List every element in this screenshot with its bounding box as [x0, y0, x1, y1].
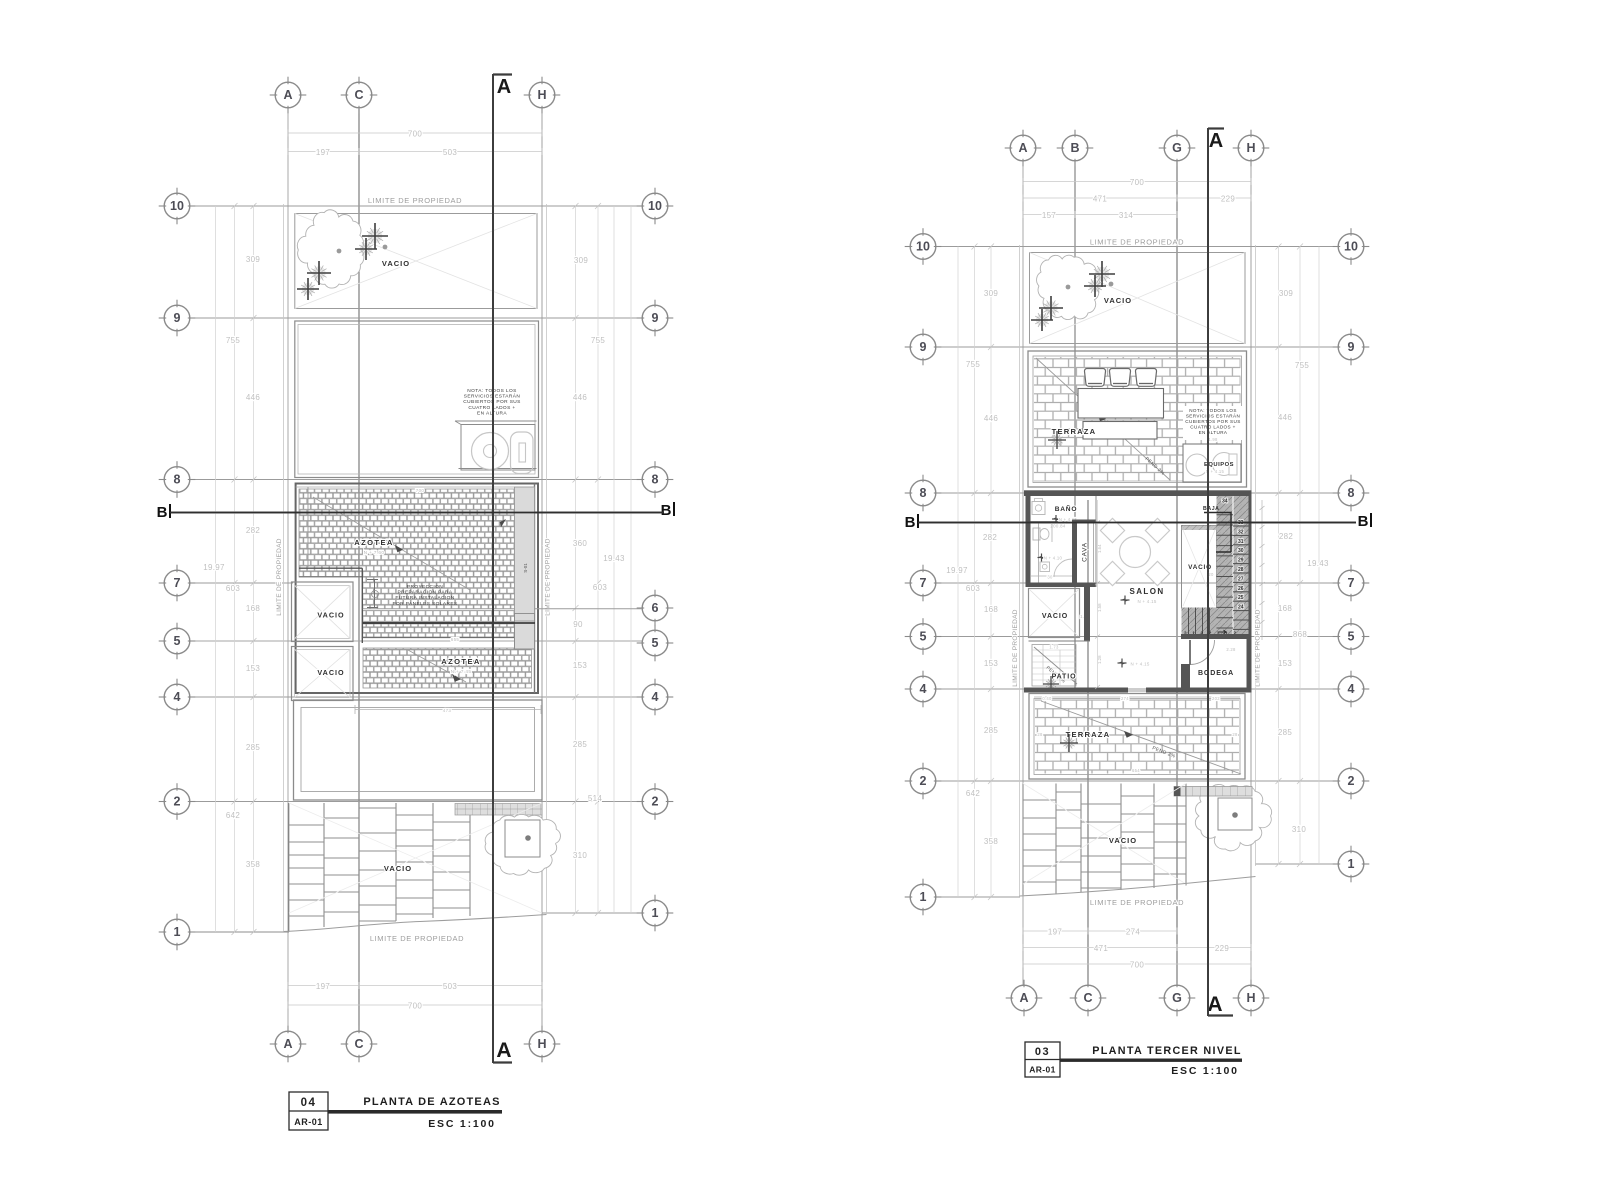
svg-text:VACIO: VACIO [382, 259, 410, 268]
svg-text:NOTA: TODOS LOS: NOTA: TODOS LOS [467, 388, 516, 394]
svg-text:9: 9 [1348, 340, 1355, 354]
svg-text:90: 90 [573, 620, 583, 629]
svg-text:30: 30 [1238, 548, 1244, 554]
svg-text:N + 4.15: N + 4.15 [1137, 599, 1156, 604]
svg-text:274: 274 [1121, 696, 1129, 701]
svg-text:2: 2 [1348, 774, 1355, 788]
svg-text:10: 10 [170, 199, 184, 213]
svg-text:CUBIERTOS POR SUS: CUBIERTOS POR SUS [1185, 419, 1240, 424]
svg-text:28: 28 [1238, 567, 1244, 573]
svg-text:755: 755 [966, 360, 980, 369]
svg-text:360: 360 [573, 539, 587, 548]
svg-text:5: 5 [1348, 630, 1355, 644]
svg-text:310: 310 [573, 851, 587, 860]
svg-text:603: 603 [593, 583, 607, 592]
svg-text:25: 25 [1238, 595, 1244, 601]
svg-text:AZOTEA: AZOTEA [354, 538, 394, 547]
svg-text:0.40: 0.40 [1042, 696, 1052, 701]
svg-text:471: 471 [1094, 944, 1108, 953]
svg-text:202: 202 [1212, 696, 1220, 701]
svg-text:309: 309 [984, 289, 998, 298]
svg-text:5: 5 [652, 636, 659, 650]
svg-text:153: 153 [246, 664, 260, 673]
svg-text:TERRAZA: TERRAZA [1052, 427, 1097, 436]
svg-text:642: 642 [966, 789, 980, 798]
svg-text:19.97: 19.97 [203, 563, 225, 572]
svg-text:868: 868 [1293, 630, 1307, 639]
svg-text:34: 34 [1222, 499, 1228, 505]
svg-text:ESC 1:100: ESC 1:100 [428, 1118, 496, 1130]
svg-text:A: A [1207, 993, 1222, 1016]
svg-text:310: 310 [1292, 825, 1306, 834]
svg-text:285: 285 [573, 740, 587, 749]
svg-text:642: 642 [226, 811, 240, 820]
svg-text:B: B [1358, 513, 1369, 530]
svg-text:AZOTEA: AZOTEA [441, 657, 481, 666]
svg-text:700: 700 [408, 130, 422, 139]
svg-text:603: 603 [226, 584, 240, 593]
svg-text:10: 10 [916, 240, 930, 254]
svg-text:446: 446 [1278, 413, 1292, 422]
svg-text:POR PANELES SOLARES: POR PANELES SOLARES [392, 601, 457, 607]
svg-text:CUATRO LADOS +: CUATRO LADOS + [468, 405, 515, 411]
svg-text:309: 309 [1279, 289, 1293, 298]
svg-text:20: 20 [1208, 572, 1214, 577]
svg-text:N + 7.45: N + 7.45 [451, 669, 472, 675]
svg-text:197: 197 [1048, 928, 1062, 937]
svg-text:282: 282 [246, 526, 260, 535]
svg-text:2.28: 2.28 [1226, 647, 1236, 652]
svg-text:A: A [283, 1037, 292, 1051]
svg-text:A: A [497, 76, 511, 98]
svg-text:PLANTA TERCER NIVEL: PLANTA TERCER NIVEL [1092, 1045, 1241, 1057]
svg-text:1: 1 [652, 906, 659, 920]
svg-text:7: 7 [1348, 576, 1355, 590]
svg-text:1.28: 1.28 [1097, 655, 1102, 664]
svg-text:9: 9 [652, 311, 659, 325]
svg-text:282: 282 [1279, 532, 1293, 541]
svg-text:8: 8 [652, 473, 659, 487]
svg-text:1: 1 [174, 925, 181, 939]
svg-text:AR-01: AR-01 [1029, 1065, 1056, 1075]
svg-text:AR-01: AR-01 [294, 1117, 323, 1127]
svg-text:7: 7 [920, 576, 927, 590]
svg-text:309: 309 [574, 256, 588, 265]
svg-text:168: 168 [1278, 604, 1292, 613]
svg-text:H: H [1246, 141, 1255, 155]
svg-text:LIMITE DE PROPIEDAD: LIMITE DE PROPIEDAD [1012, 609, 1019, 687]
svg-text:28: 28 [1037, 732, 1043, 737]
svg-text:503: 503 [443, 148, 457, 157]
svg-text:27: 27 [1238, 576, 1244, 582]
svg-text:PREPARACION PARA: PREPARACION PARA [397, 590, 452, 596]
svg-text:229: 229 [1215, 944, 1229, 953]
svg-text:153: 153 [1278, 659, 1292, 668]
svg-text:31: 31 [1238, 539, 1244, 545]
svg-text:26: 26 [1238, 586, 1244, 592]
svg-text:LIMITE DE PROPIEDAD: LIMITE DE PROPIEDAD [368, 196, 462, 205]
svg-text:285: 285 [246, 743, 260, 752]
svg-text:10: 10 [1344, 240, 1358, 254]
svg-text:B: B [661, 502, 672, 519]
svg-text:B: B [1070, 141, 1079, 155]
svg-text:BAJA: BAJA [1203, 506, 1220, 512]
svg-text:503: 503 [443, 982, 457, 991]
svg-text:1.58: 1.58 [1097, 603, 1102, 612]
svg-text:19.43: 19.43 [1307, 559, 1329, 568]
svg-text:197: 197 [316, 148, 330, 157]
svg-text:446: 446 [984, 414, 998, 423]
svg-text:N + 4.10: N + 4.10 [1044, 556, 1063, 561]
svg-text:157: 157 [1042, 211, 1056, 220]
svg-text:28: 28 [1232, 732, 1238, 737]
svg-text:G: G [1172, 141, 1182, 155]
svg-text:700: 700 [1130, 961, 1144, 970]
svg-text:514: 514 [588, 794, 602, 803]
svg-text:SERVICIOS ESTARÁN: SERVICIOS ESTARÁN [1186, 413, 1240, 419]
svg-text:C: C [354, 88, 363, 102]
svg-text:755: 755 [591, 336, 605, 345]
svg-text:PATIO: PATIO [1052, 674, 1077, 681]
svg-text:EN ALTURA: EN ALTURA [1199, 430, 1228, 435]
svg-text:1.73: 1.73 [1049, 645, 1059, 650]
svg-text:700: 700 [1130, 178, 1144, 187]
svg-text:4: 4 [920, 682, 927, 696]
svg-text:153: 153 [984, 659, 998, 668]
svg-text:H: H [537, 1037, 546, 1051]
svg-text:9: 9 [920, 340, 927, 354]
svg-text:S-01: S-01 [523, 563, 528, 573]
svg-text:8: 8 [1348, 486, 1355, 500]
svg-text:755: 755 [1295, 361, 1309, 370]
svg-text:LIMITE DE PROPIEDAD: LIMITE DE PROPIEDAD [1255, 609, 1262, 687]
svg-text:700: 700 [416, 488, 425, 493]
svg-text:A: A [1019, 991, 1028, 1005]
svg-text:VACIO: VACIO [1104, 296, 1132, 305]
svg-text:5: 5 [174, 634, 181, 648]
svg-text:6: 6 [652, 601, 659, 615]
svg-text:N + 7.60: N + 7.60 [364, 550, 385, 556]
svg-text:755: 755 [226, 336, 240, 345]
svg-text:LIMITE DE PROPIEDAD: LIMITE DE PROPIEDAD [1090, 238, 1184, 247]
svg-text:B: B [905, 514, 916, 531]
svg-text:200.84: 200.84 [1050, 524, 1065, 529]
svg-text:4: 4 [174, 690, 181, 704]
svg-text:285: 285 [984, 726, 998, 735]
svg-text:VACIO: VACIO [1109, 836, 1137, 845]
svg-text:A: A [1018, 141, 1027, 155]
svg-text:358: 358 [984, 837, 998, 846]
svg-text:314: 314 [1119, 211, 1133, 220]
svg-text:PLANTA DE AZOTEAS: PLANTA DE AZOTEAS [363, 1096, 500, 1108]
svg-text:SALON: SALON [1130, 587, 1165, 596]
svg-text:24: 24 [1238, 605, 1244, 611]
svg-text:654: 654 [1132, 768, 1140, 773]
svg-text:A: A [1209, 130, 1223, 152]
svg-text:FUTURA INSTALACION: FUTURA INSTALACION [395, 595, 454, 601]
svg-text:CUATRO LADOS +: CUATRO LADOS + [1190, 425, 1235, 430]
svg-text:1.98: 1.98 [1208, 437, 1218, 442]
svg-text:A: A [283, 88, 292, 102]
svg-text:2: 2 [652, 795, 659, 809]
svg-text:5: 5 [920, 630, 927, 644]
svg-text:473: 473 [443, 708, 452, 713]
svg-text:H: H [537, 88, 546, 102]
svg-text:B: B [157, 504, 168, 521]
svg-text:PROYECCION: PROYECCION [407, 584, 443, 590]
svg-text:153: 153 [573, 661, 587, 670]
svg-text:C: C [1083, 991, 1092, 1005]
svg-text:30: 30 [1047, 575, 1053, 580]
svg-text:H: H [1246, 991, 1255, 1005]
svg-text:VACIO: VACIO [384, 864, 412, 873]
svg-text:LIMITE DE PROPIEDAD: LIMITE DE PROPIEDAD [370, 934, 464, 943]
svg-text:446: 446 [573, 393, 587, 402]
svg-text:BODEGA: BODEGA [1198, 670, 1234, 677]
svg-text:9: 9 [174, 311, 181, 325]
svg-text:A: A [496, 1039, 511, 1062]
svg-text:446: 446 [246, 393, 260, 402]
svg-text:VACIO: VACIO [1042, 613, 1068, 620]
svg-text:168: 168 [246, 604, 260, 613]
svg-text:19.97: 19.97 [946, 566, 968, 575]
svg-text:8: 8 [920, 486, 927, 500]
svg-text:G: G [1172, 991, 1182, 1005]
svg-text:2: 2 [920, 774, 927, 788]
svg-text:1: 1 [920, 890, 927, 904]
svg-text:LIMITE DE PROPIEDAD: LIMITE DE PROPIEDAD [545, 538, 552, 616]
svg-text:197: 197 [316, 982, 330, 991]
svg-text:8: 8 [174, 473, 181, 487]
svg-text:ESC 1:100: ESC 1:100 [1171, 1065, 1239, 1077]
svg-text:285: 285 [1278, 728, 1292, 737]
svg-text:CUBIERTOS POR SUS: CUBIERTOS POR SUS [463, 399, 521, 405]
svg-text:655: 655 [451, 637, 460, 642]
svg-text:NOTA: TODOS LOS: NOTA: TODOS LOS [1189, 408, 1237, 413]
svg-text:358: 358 [246, 860, 260, 869]
svg-text:CAVA: CAVA [1082, 542, 1089, 562]
svg-text:04: 04 [301, 1097, 317, 1109]
svg-text:10: 10 [648, 199, 662, 213]
svg-text:309: 309 [246, 255, 260, 264]
svg-text:03: 03 [1035, 1046, 1050, 1058]
svg-text:1: 1 [1348, 857, 1355, 871]
svg-text:4: 4 [652, 690, 659, 704]
svg-text:229: 229 [1221, 195, 1235, 204]
svg-text:LIMITE DE PROPIEDAD: LIMITE DE PROPIEDAD [1090, 898, 1184, 907]
svg-text:32: 32 [1238, 529, 1244, 535]
svg-text:168: 168 [984, 605, 998, 614]
svg-text:LIMITE DE PROPIEDAD: LIMITE DE PROPIEDAD [276, 538, 283, 616]
svg-text:282: 282 [983, 533, 997, 542]
svg-text:2: 2 [174, 795, 181, 809]
svg-text:1.64: 1.64 [1097, 544, 1102, 553]
svg-text:N + 4.15: N + 4.15 [1130, 662, 1149, 667]
svg-text:29: 29 [1238, 558, 1244, 564]
svg-text:603: 603 [966, 584, 980, 593]
svg-text:274: 274 [1126, 928, 1140, 937]
svg-text:VACIO: VACIO [317, 668, 344, 677]
svg-text:C: C [354, 1037, 363, 1051]
svg-text:471: 471 [1093, 195, 1107, 204]
svg-text:7: 7 [174, 576, 181, 590]
svg-text:4: 4 [1348, 682, 1355, 696]
svg-text:19.43: 19.43 [603, 554, 625, 563]
svg-text:VACIO: VACIO [317, 611, 344, 620]
svg-text:700: 700 [408, 1002, 422, 1011]
svg-text:BAÑO: BAÑO [1055, 504, 1078, 513]
